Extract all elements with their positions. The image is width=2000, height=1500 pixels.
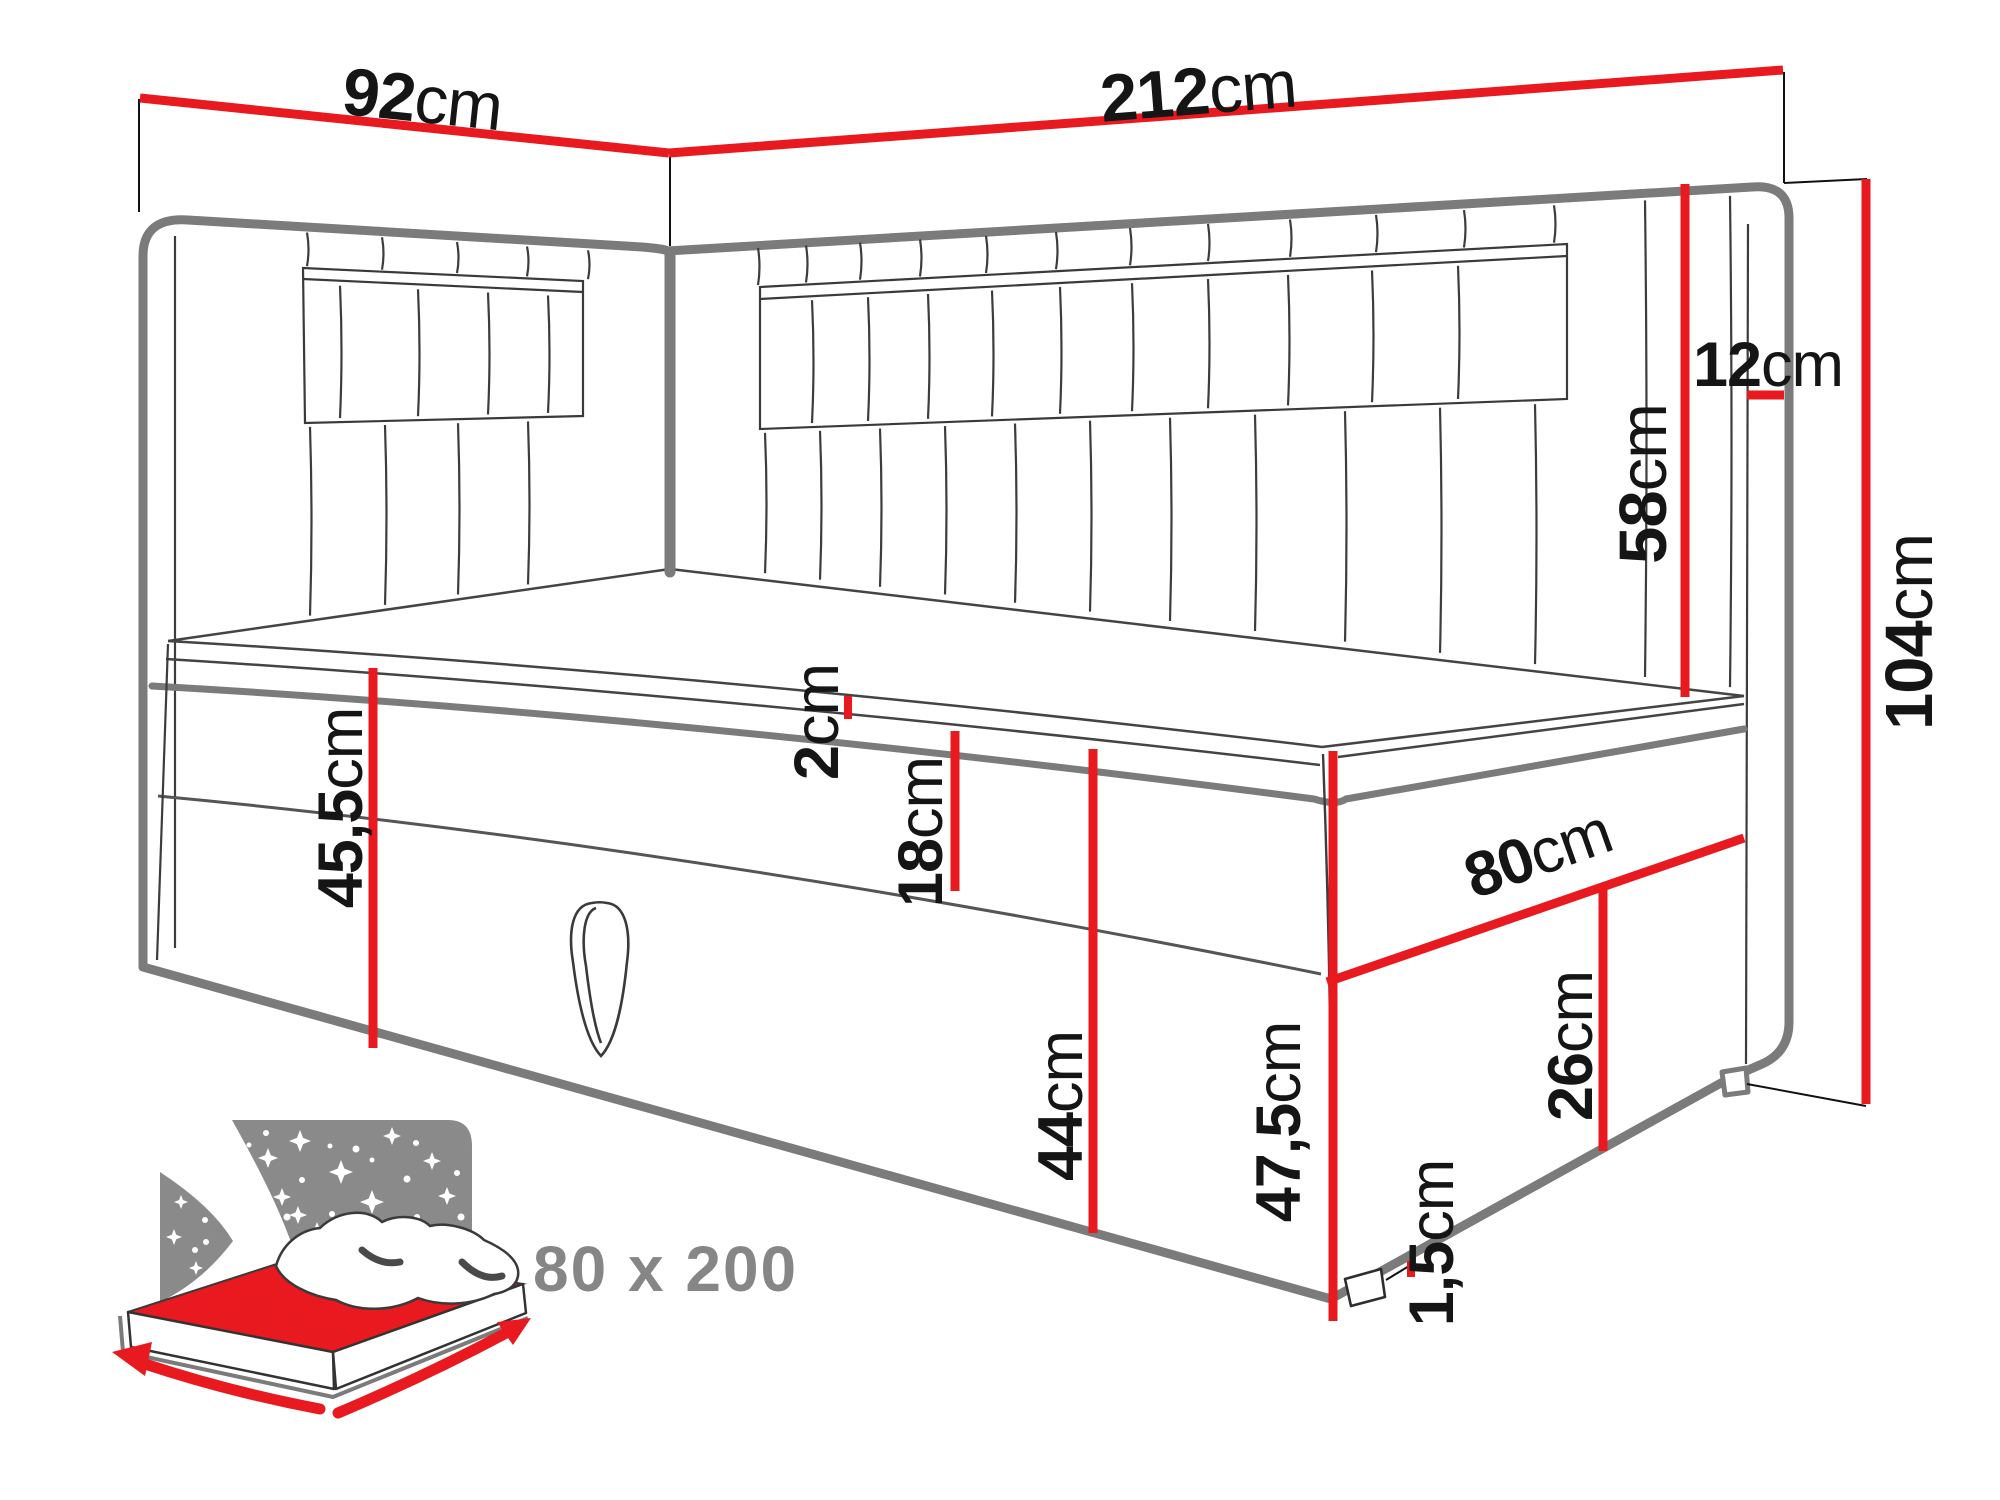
dim-12-label: 12cm	[1693, 330, 1843, 400]
diagram-canvas: 92cm 212cm 12cm 58cm 104cm 2cm 18cm 45,5…	[0, 0, 2000, 1500]
star-dot-icon	[454, 1170, 460, 1176]
star-dot-icon	[413, 1140, 419, 1146]
star-dot-icon	[370, 1158, 375, 1163]
dim-47_5-label: 47,5cm	[1244, 1022, 1314, 1223]
size-badge: 80 x 200	[533, 1233, 798, 1305]
star-dot-icon	[207, 1202, 213, 1208]
star-dot-icon	[202, 1217, 208, 1223]
dim-26-label: 26cm	[1536, 971, 1606, 1121]
star-dot-icon	[284, 1214, 291, 1221]
dim-92-label: 92cm	[339, 54, 506, 145]
star-dot-icon	[353, 1146, 360, 1153]
star-dot-icon	[197, 1192, 203, 1198]
star-dot-icon	[203, 1239, 209, 1245]
star-dot-icon	[299, 1177, 305, 1183]
dim-1_5-label: 1,5cm	[1397, 1160, 1467, 1327]
extension-line	[1784, 179, 1867, 183]
headboard-niche-left	[303, 268, 583, 423]
star-dot-icon	[259, 1239, 265, 1245]
bed-dimension-diagram: 92cm 212cm 12cm 58cm 104cm 2cm 18cm 45,5…	[0, 0, 2000, 1500]
dim-104-label: 104cm	[1872, 534, 1947, 730]
dim-44-label: 44cm	[1026, 1031, 1096, 1181]
dim-2-label: 2cm	[782, 664, 852, 780]
star-dot-icon	[247, 1143, 252, 1148]
dim-45_5-label: 45,5cm	[306, 708, 376, 909]
star-dot-icon	[404, 1176, 411, 1183]
extension-line	[1747, 1084, 1866, 1106]
star-dot-icon	[192, 1247, 198, 1253]
star-dot-icon	[204, 1175, 210, 1181]
dim-58-label: 58cm	[1606, 404, 1681, 564]
star-dot-icon	[263, 1130, 269, 1136]
star-dot-icon	[190, 1180, 195, 1185]
icon-width-arrowhead	[112, 1342, 152, 1376]
dim-212-label: 212cm	[1098, 46, 1299, 136]
star-dot-icon	[328, 1144, 333, 1149]
star-dot-icon	[458, 1214, 465, 1221]
size-icon: 80 x 200	[112, 1120, 798, 1413]
bed-leg-right	[1722, 1068, 1748, 1095]
dim-18-label: 18cm	[886, 757, 956, 907]
star-dot-icon	[329, 1211, 335, 1217]
